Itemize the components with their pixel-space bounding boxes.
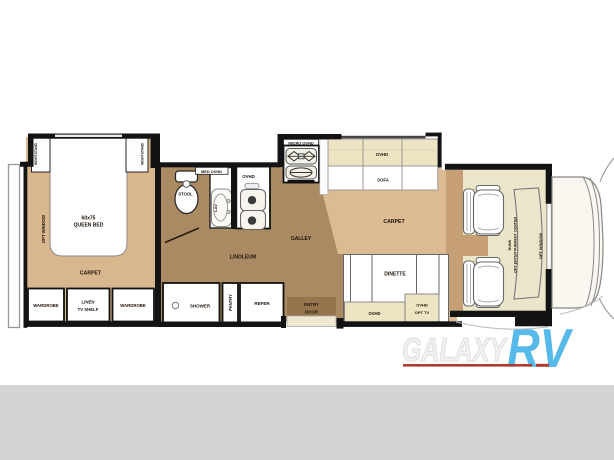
svg-text:SOFA: SOFA bbox=[377, 178, 389, 183]
svg-text:DOOR: DOOR bbox=[305, 310, 319, 315]
svg-text:CARPET: CARPET bbox=[80, 271, 102, 277]
svg-text:PANTRY: PANTRY bbox=[228, 294, 233, 311]
svg-text:GALLEY: GALLEY bbox=[291, 236, 312, 242]
svg-text:ENTRY: ENTRY bbox=[304, 302, 319, 307]
svg-text:60x75: 60x75 bbox=[82, 216, 96, 222]
svg-text:CARPET: CARPET bbox=[383, 219, 405, 225]
svg-text:TV SHELF: TV SHELF bbox=[78, 307, 99, 312]
svg-text:LINEN: LINEN bbox=[82, 300, 95, 305]
svg-text:OVHD: OVHD bbox=[368, 311, 380, 316]
svg-text:MED OVHD: MED OVHD bbox=[201, 169, 222, 174]
svg-text:WARDROBE: WARDROBE bbox=[120, 303, 146, 308]
svg-text:OVHD: OVHD bbox=[242, 174, 254, 179]
svg-text:OPT WINDOW: OPT WINDOW bbox=[538, 233, 543, 259]
svg-text:STOOL: STOOL bbox=[178, 192, 193, 197]
svg-text:DINETTE: DINETTE bbox=[384, 272, 406, 278]
svg-text:LINOLEUM: LINOLEUM bbox=[230, 255, 256, 261]
svg-text:OPT WINDOW: OPT WINDOW bbox=[41, 215, 46, 243]
svg-text:QUEEN BED: QUEEN BED bbox=[74, 223, 104, 229]
svg-text:NIGHTSTAND: NIGHTSTAND bbox=[34, 142, 38, 165]
svg-text:OVHD: OVHD bbox=[416, 303, 428, 308]
svg-text:OVHD: OVHD bbox=[376, 152, 388, 157]
svg-text:REFER: REFER bbox=[254, 301, 270, 306]
svg-text:GALAXY: GALAXY bbox=[402, 331, 508, 368]
svg-text:WARDROBE: WARDROBE bbox=[33, 303, 59, 308]
svg-text:LAV: LAV bbox=[213, 204, 218, 212]
svg-text:NIGHTSTAND: NIGHTSTAND bbox=[141, 142, 145, 165]
svg-text:SHOWER: SHOWER bbox=[190, 304, 211, 309]
svg-text:OPT ENTERTAINMENT CENTER: OPT ENTERTAINMENT CENTER bbox=[514, 217, 518, 273]
svg-text:BUNK: BUNK bbox=[508, 239, 512, 250]
svg-text:OPT TV: OPT TV bbox=[415, 310, 430, 315]
